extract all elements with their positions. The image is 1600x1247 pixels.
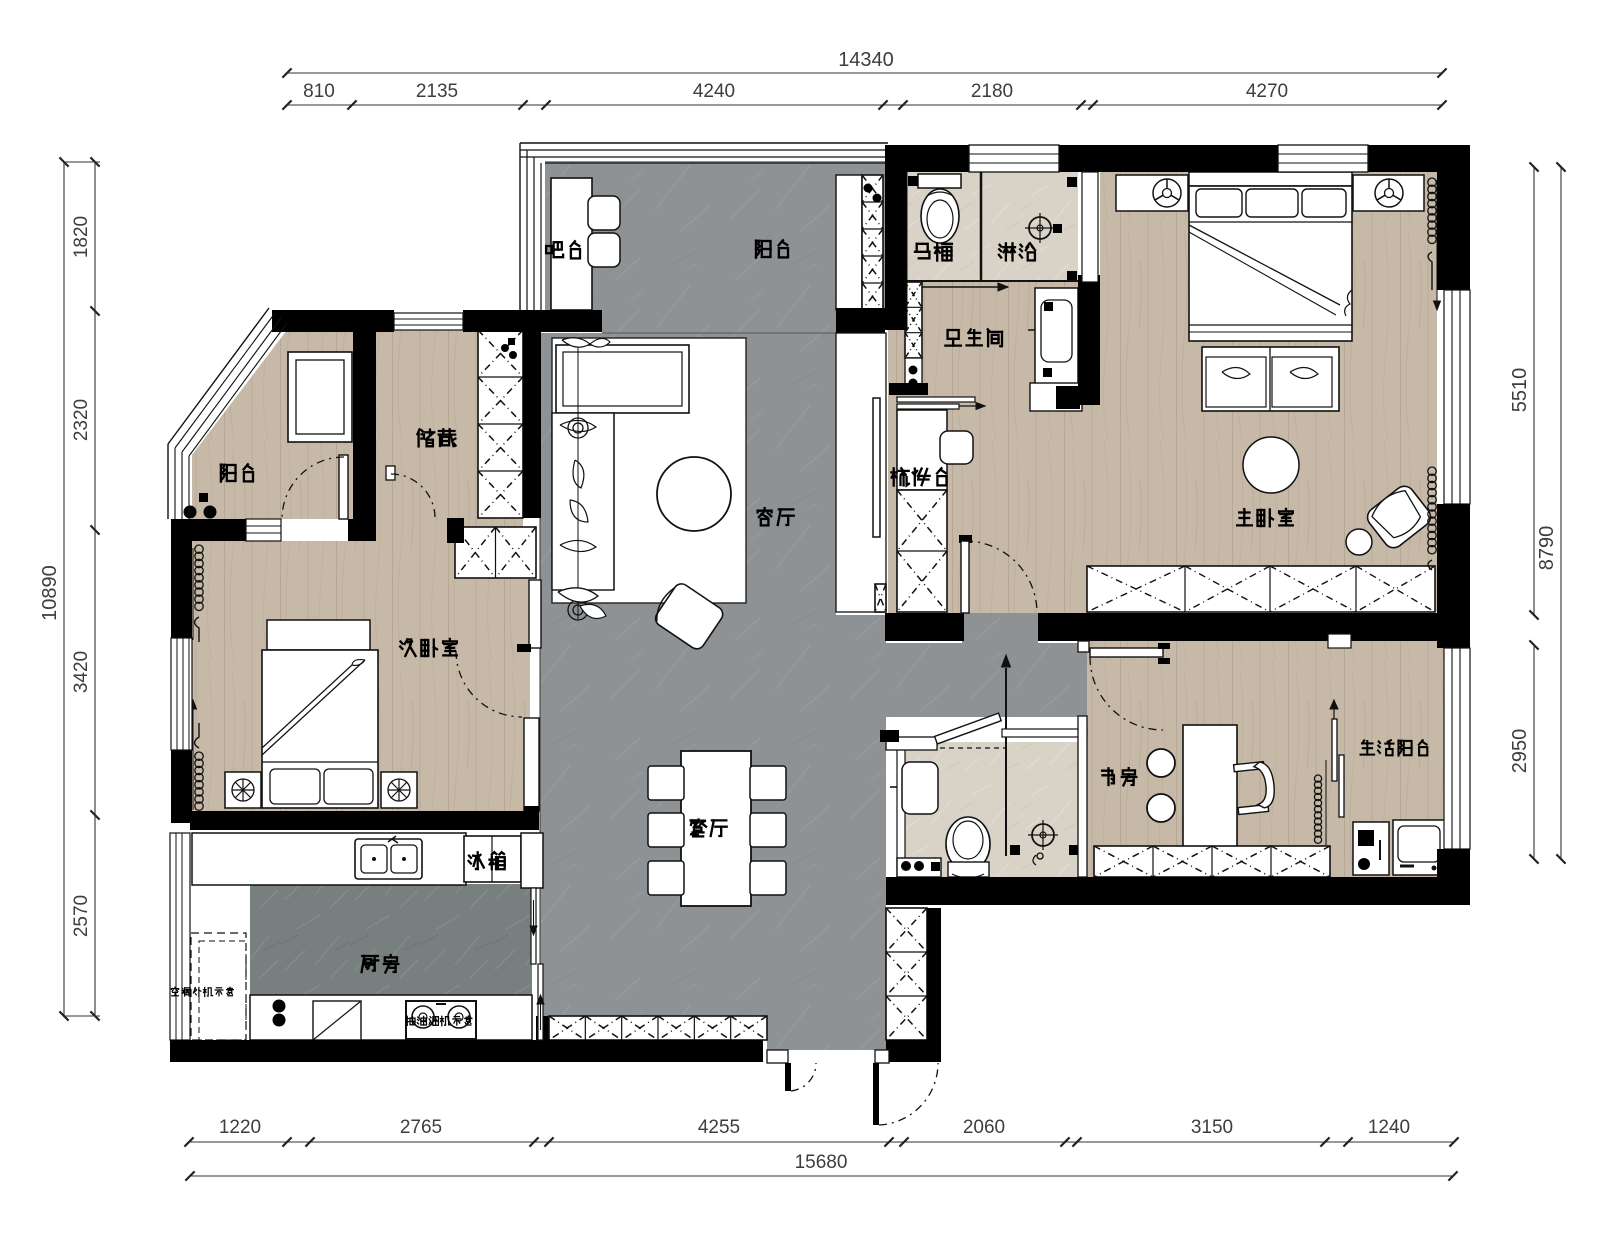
svg-text:1820: 1820 — [71, 216, 92, 258]
svg-text:4240: 4240 — [693, 81, 735, 102]
svg-text:2570: 2570 — [71, 895, 92, 937]
svg-text:1220: 1220 — [219, 1117, 261, 1138]
svg-text:2950: 2950 — [1509, 729, 1531, 774]
svg-text:5510: 5510 — [1509, 368, 1531, 413]
svg-text:4255: 4255 — [698, 1117, 740, 1138]
svg-text:4270: 4270 — [1246, 81, 1288, 102]
svg-text:8790: 8790 — [1536, 526, 1558, 571]
svg-text:1240: 1240 — [1368, 1117, 1410, 1138]
svg-text:810: 810 — [303, 81, 335, 102]
svg-text:2060: 2060 — [963, 1117, 1005, 1138]
svg-text:2765: 2765 — [400, 1117, 442, 1138]
svg-text:3420: 3420 — [71, 651, 92, 693]
svg-text:2180: 2180 — [971, 81, 1013, 102]
svg-text:15680: 15680 — [795, 1152, 848, 1173]
svg-text:14340: 14340 — [838, 49, 894, 71]
svg-text:2320: 2320 — [71, 399, 92, 441]
svg-text:3150: 3150 — [1191, 1117, 1233, 1138]
svg-text:2135: 2135 — [416, 81, 458, 102]
svg-text:10890: 10890 — [39, 565, 61, 621]
